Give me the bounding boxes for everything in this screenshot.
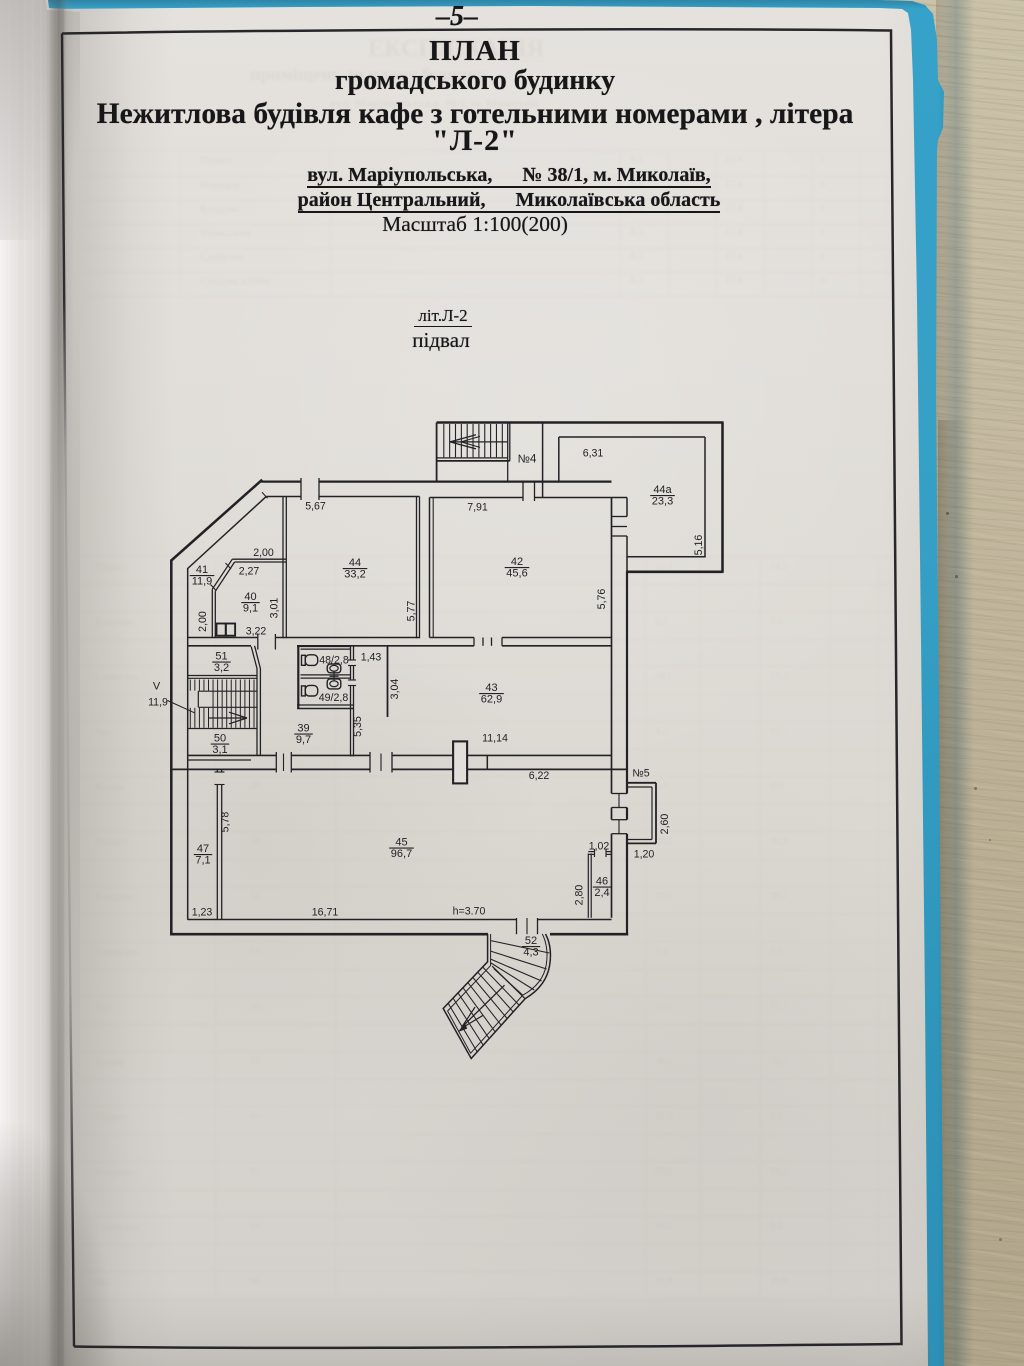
svg-text:41: 41 bbox=[196, 564, 208, 576]
svg-text:33,2: 33,2 bbox=[344, 569, 365, 581]
svg-text:7,1: 7,1 bbox=[195, 855, 210, 867]
svg-text:52: 52 bbox=[525, 935, 537, 947]
svg-text:2,00: 2,00 bbox=[197, 611, 209, 632]
svg-text:5,77: 5,77 bbox=[406, 601, 418, 622]
svg-text:9,7: 9,7 bbox=[296, 734, 311, 746]
svg-text:2,60: 2,60 bbox=[659, 814, 671, 835]
svg-text:3,2: 3,2 bbox=[214, 662, 229, 674]
svg-text:11,9: 11,9 bbox=[192, 576, 213, 588]
svg-text:44: 44 bbox=[349, 557, 361, 569]
svg-text:2,00: 2,00 bbox=[253, 547, 274, 559]
svg-text:6,22: 6,22 bbox=[529, 770, 550, 782]
svg-text:3,04: 3,04 bbox=[389, 679, 401, 700]
svg-text:5,16: 5,16 bbox=[693, 535, 705, 556]
svg-text:49/2,8: 49/2,8 bbox=[319, 692, 349, 704]
svg-text:50: 50 bbox=[214, 733, 226, 745]
svg-text:45,6: 45,6 bbox=[506, 568, 527, 580]
svg-text:43: 43 bbox=[485, 682, 497, 694]
svg-text:7,91: 7,91 bbox=[467, 502, 488, 514]
svg-text:5,35: 5,35 bbox=[352, 716, 364, 737]
svg-text:11,14: 11,14 bbox=[482, 733, 508, 745]
svg-text:47: 47 bbox=[197, 843, 209, 855]
svg-text:V: V bbox=[153, 681, 161, 693]
svg-text:2,80: 2,80 bbox=[574, 885, 586, 906]
svg-text:40: 40 bbox=[244, 591, 256, 603]
svg-text:№4: №4 bbox=[518, 454, 537, 466]
svg-text:6,31: 6,31 bbox=[583, 448, 604, 460]
svg-text:1,20: 1,20 bbox=[634, 849, 655, 861]
svg-text:45: 45 bbox=[395, 837, 407, 849]
svg-text:2,4: 2,4 bbox=[594, 887, 609, 899]
svg-text:62,9: 62,9 bbox=[481, 694, 502, 706]
svg-text:16,71: 16,71 bbox=[312, 907, 339, 919]
svg-text:№5: №5 bbox=[632, 768, 649, 780]
svg-text:1,23: 1,23 bbox=[192, 907, 213, 919]
svg-text:5,76: 5,76 bbox=[596, 589, 608, 610]
svg-text:48/2,8: 48/2,8 bbox=[319, 655, 349, 667]
svg-text:4,3: 4,3 bbox=[523, 947, 538, 959]
svg-text:9,1: 9,1 bbox=[243, 603, 258, 615]
svg-text:3,22: 3,22 bbox=[246, 626, 267, 638]
svg-text:1,02: 1,02 bbox=[589, 841, 610, 853]
svg-text:11,9: 11,9 bbox=[148, 697, 168, 709]
svg-text:44а: 44а bbox=[653, 484, 672, 496]
svg-text:96,7: 96,7 bbox=[391, 848, 412, 860]
svg-text:5,78: 5,78 bbox=[220, 812, 232, 833]
svg-text:51: 51 bbox=[215, 651, 227, 663]
svg-text:3,1: 3,1 bbox=[212, 744, 227, 756]
svg-text:5,67: 5,67 bbox=[305, 501, 326, 513]
svg-text:1,43: 1,43 bbox=[361, 652, 382, 664]
svg-text:3,01: 3,01 bbox=[269, 598, 281, 619]
svg-text:46: 46 bbox=[596, 876, 608, 888]
svg-text:39: 39 bbox=[297, 723, 309, 735]
svg-text:42: 42 bbox=[511, 556, 523, 568]
svg-text:h=3.70: h=3.70 bbox=[453, 906, 486, 918]
svg-text:2,27: 2,27 bbox=[239, 566, 260, 578]
svg-text:23,3: 23,3 bbox=[652, 496, 673, 508]
